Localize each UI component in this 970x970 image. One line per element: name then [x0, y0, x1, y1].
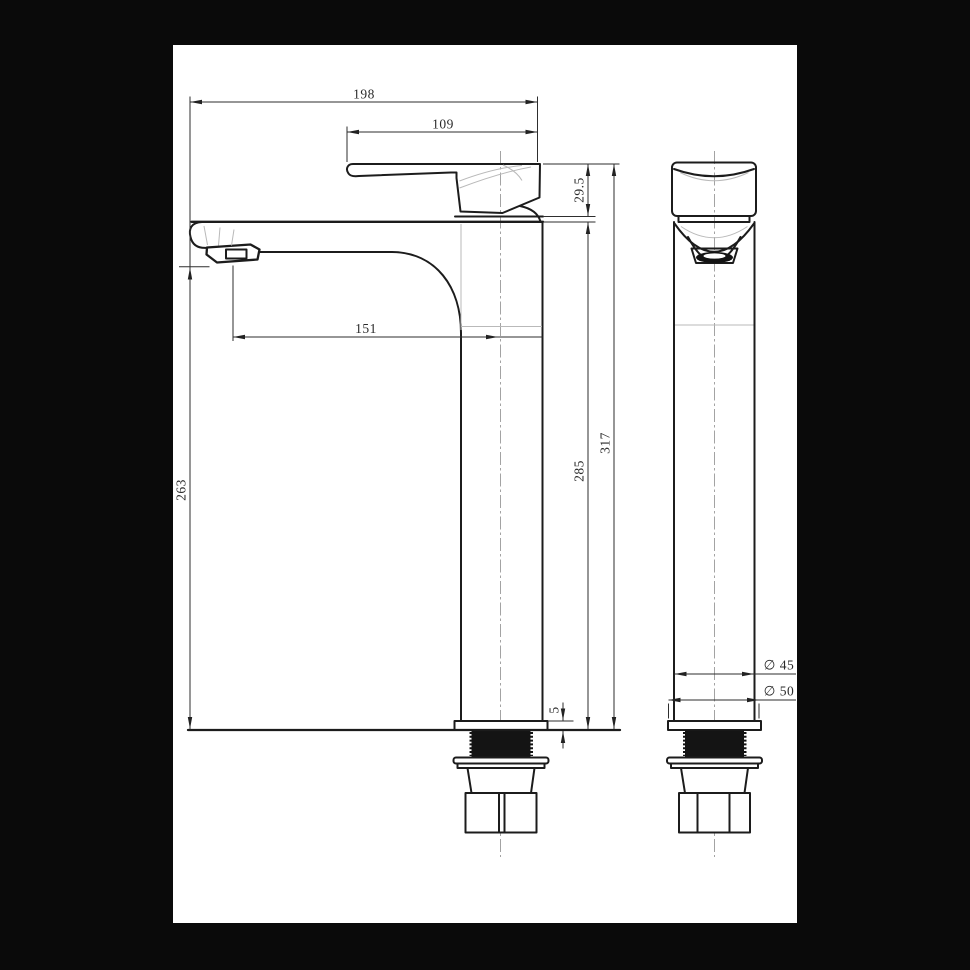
dim-label-body-diameter: ∅ 45: [764, 658, 795, 673]
dim-label-overall-length: 198: [353, 87, 375, 102]
hex-nut: [679, 793, 750, 833]
dim-label-handle-length: 109: [432, 117, 454, 132]
dim-label-handle-rise: 29.5: [572, 177, 587, 203]
dim-label-spout-reach: 151: [355, 321, 377, 336]
dim-label-base-plate-thickness: 5: [547, 706, 562, 713]
aerator-rim: [704, 253, 726, 258]
dim-label-base-diameter: ∅ 50: [764, 684, 795, 699]
base-flange: [668, 721, 761, 730]
mounting-thread: [472, 731, 531, 758]
hex-nut: [466, 793, 537, 833]
technical-drawing: 198 109 151 263 29.5 285 317 5 ∅ 45 ∅ 50: [0, 0, 970, 970]
inlet-collar: [468, 768, 535, 793]
dim-label-overall-height: 317: [598, 432, 613, 454]
base-flange: [455, 721, 548, 730]
mounting-thread: [685, 731, 744, 758]
dim-label-body-height: 285: [572, 460, 587, 482]
screenshot-canvas: 198 109 151 263 29.5 285 317 5 ∅ 45 ∅ 50: [0, 0, 970, 970]
dim-label-spout-outlet-height: 263: [174, 479, 189, 501]
inlet-collar: [681, 768, 748, 793]
